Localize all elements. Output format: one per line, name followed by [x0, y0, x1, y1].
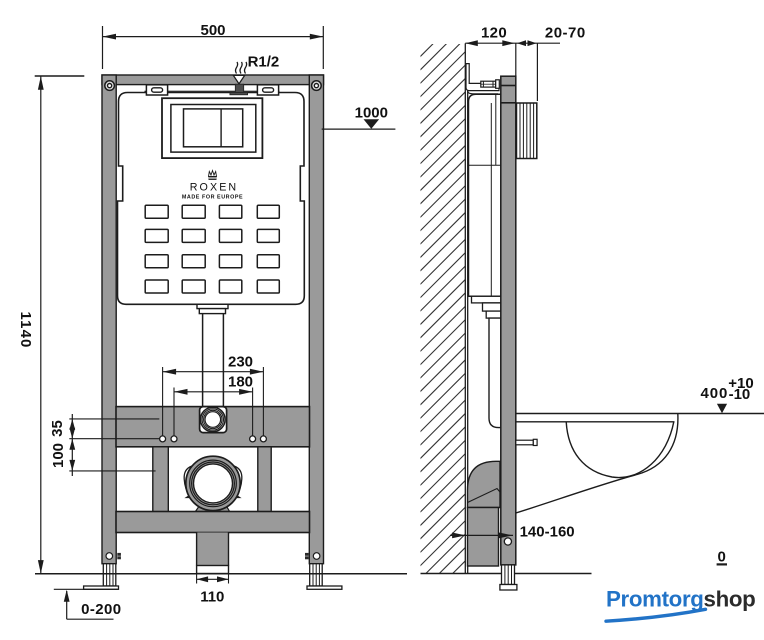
- svg-text:1140: 1140: [17, 312, 34, 349]
- svg-text:1000: 1000: [355, 105, 388, 122]
- svg-text:0-200: 0-200: [81, 601, 121, 618]
- svg-text:0: 0: [718, 549, 726, 566]
- svg-text:20-70: 20-70: [545, 25, 586, 42]
- svg-text:Promtorgshop: Promtorgshop: [606, 586, 755, 611]
- svg-text:230: 230: [228, 353, 253, 370]
- svg-text:120: 120: [481, 25, 507, 42]
- svg-text:180: 180: [228, 374, 253, 391]
- svg-text:R1/2: R1/2: [248, 53, 280, 70]
- svg-text:35: 35: [49, 420, 66, 437]
- svg-text:ROXEN: ROXEN: [190, 181, 239, 193]
- svg-text:MADE FOR EUROPE: MADE FOR EUROPE: [182, 194, 243, 200]
- svg-text:100: 100: [50, 443, 67, 468]
- svg-text:110: 110: [200, 589, 224, 606]
- svg-text:-10: -10: [729, 386, 751, 403]
- svg-text:400: 400: [701, 385, 729, 402]
- svg-text:140-160: 140-160: [520, 524, 575, 541]
